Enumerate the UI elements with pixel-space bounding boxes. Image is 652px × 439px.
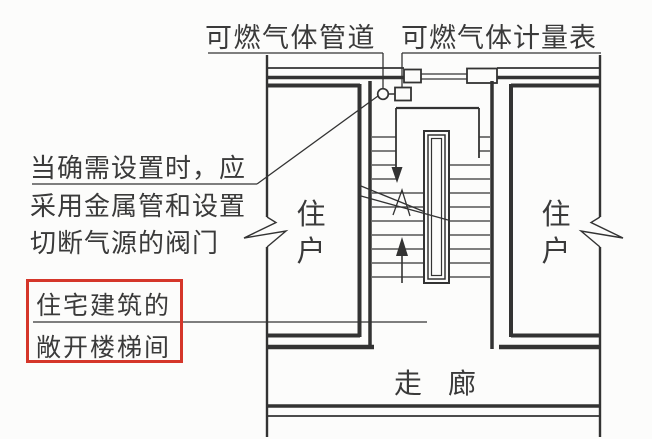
gas-meter-label: 可燃气体计量表 [401,16,597,55]
highlight-line-1: 住宅建筑的 [36,286,171,322]
corridor-label: 走廊 [394,362,502,402]
note-line-3: 切断气源的阀门 [30,225,219,263]
highlight-box: 住宅建筑的 敞开楼梯间 [26,279,183,363]
gas-pipe-label: 可燃气体管道 [205,16,376,55]
note-line-2: 采用金属管和设置 [30,188,246,226]
unit-label-right: 住户 [539,197,573,271]
unit-label-left: 住户 [294,197,328,271]
floor-plan-figure: 可燃气体管道 可燃气体计量表 当确需设置时，应 采用金属管和设置 切断气源的阀门… [0,0,652,439]
highlight-line-2: 敞开楼梯间 [36,328,171,364]
note-line-1: 当确需设置时，应 [30,150,246,188]
